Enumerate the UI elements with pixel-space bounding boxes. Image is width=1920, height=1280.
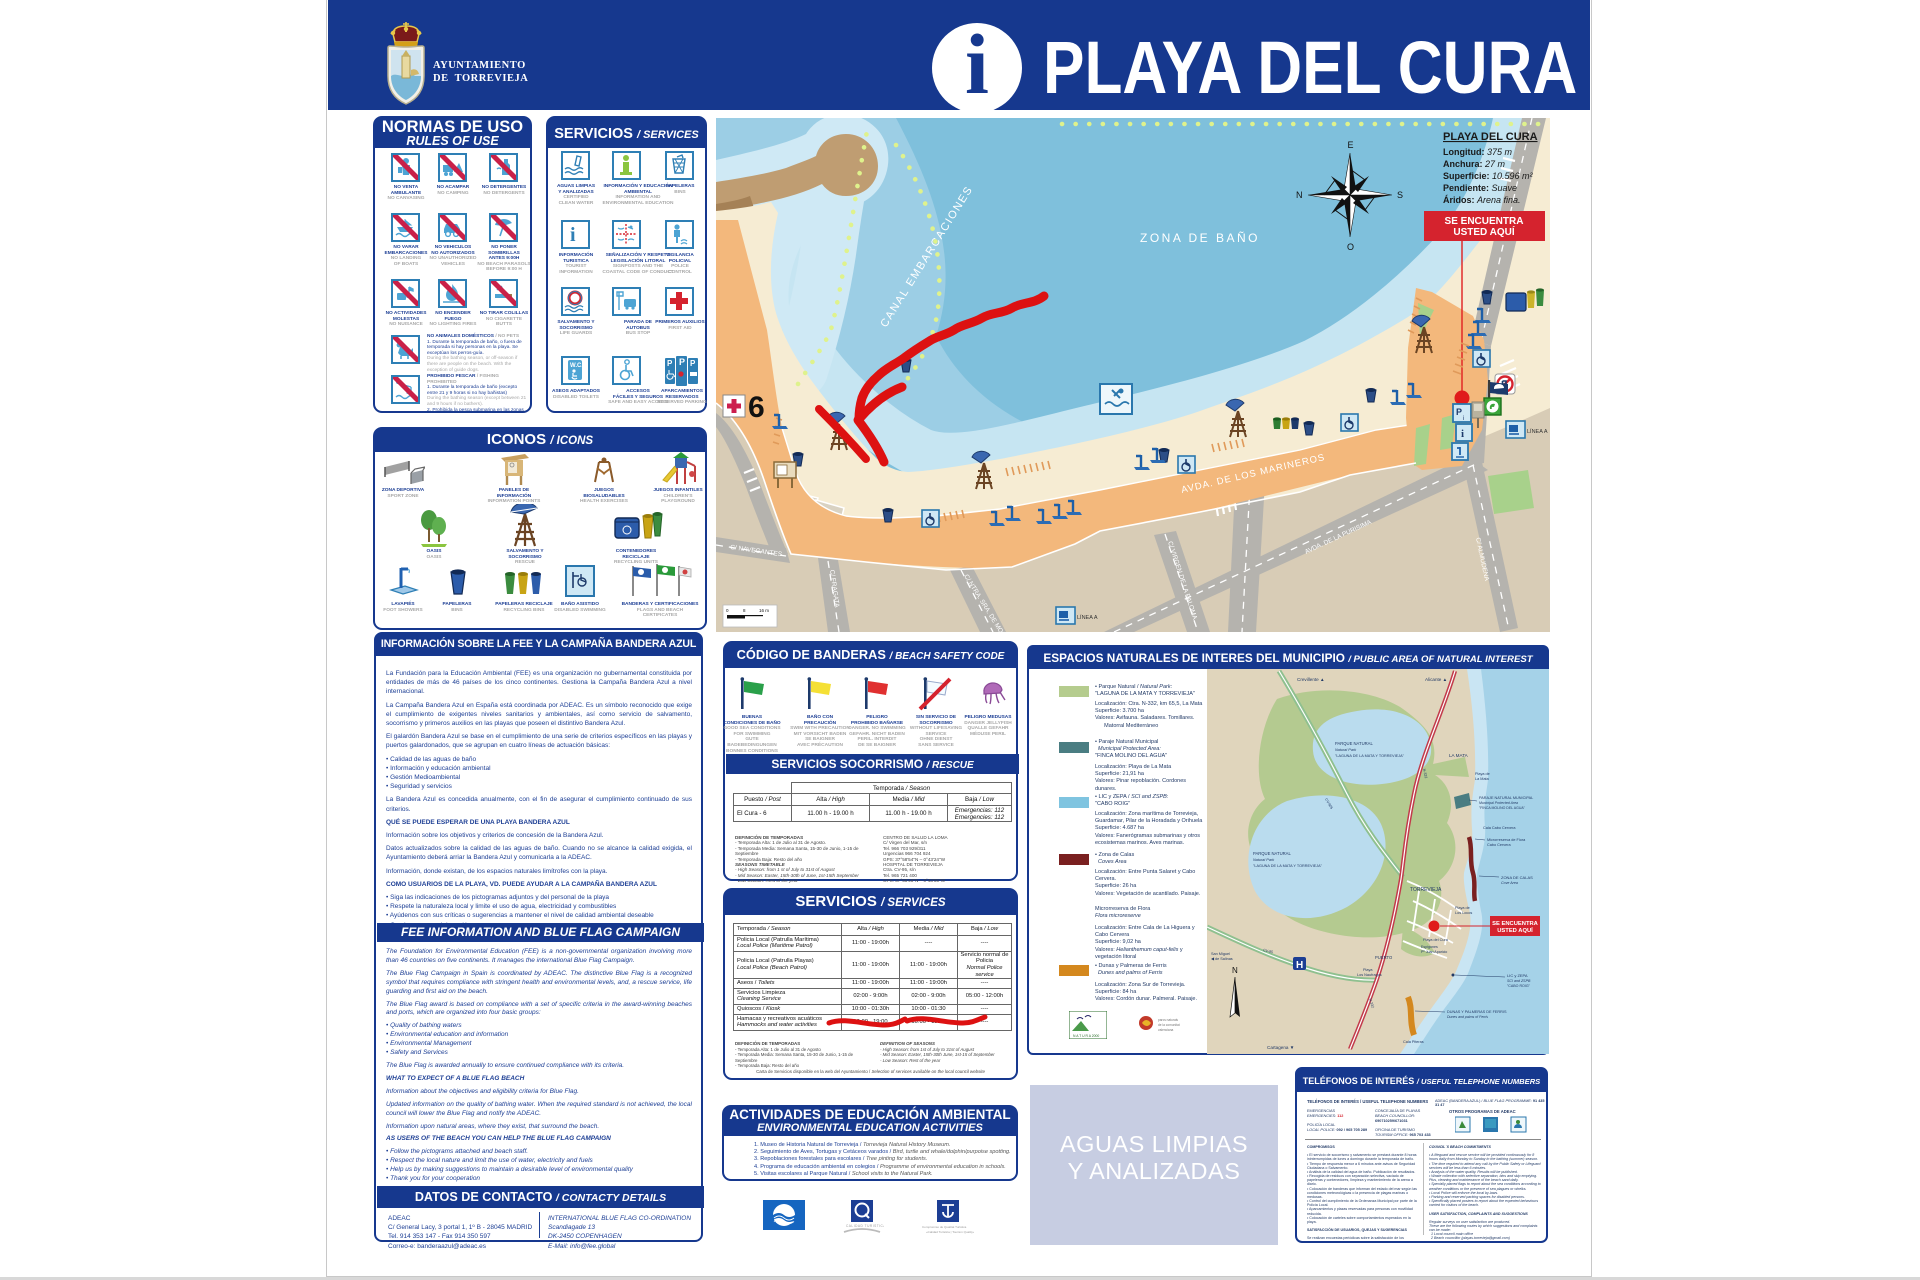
svg-text:PARQUE NATURAL: PARQUE NATURAL (1253, 851, 1291, 856)
svg-text:i: i (1461, 428, 1464, 440)
svg-text:San Miguel: San Miguel (1211, 952, 1230, 956)
svg-text:Microrreserva de Flora: Microrreserva de Flora (1487, 838, 1526, 842)
svg-text:PLAYA DEL CURA: PLAYA DEL CURA (1443, 131, 1538, 143)
svg-text:Cala Piteras: Cala Piteras (1403, 1040, 1424, 1044)
svg-text:E: E (1348, 140, 1354, 150)
svg-text:Alicante ▲: Alicante ▲ (1425, 677, 1447, 682)
svg-text:TORREVIEJA: TORREVIEJA (1410, 887, 1442, 893)
svg-text:DUNAS Y PALMERAS DE FERRIS: DUNAS Y PALMERAS DE FERRIS (1447, 1010, 1507, 1014)
svg-text:Playa del Cura: Playa del Cura (1423, 938, 1449, 942)
svg-text:P: P (690, 359, 696, 368)
svg-text:La Mata: La Mata (1475, 777, 1490, 781)
svg-text:Crevillente ▲: Crevillente ▲ (1297, 677, 1325, 682)
svg-text:CALIDAD TURISTICA: CALIDAD TURISTICA (846, 1224, 884, 1228)
svg-text:Superficie: 10.596 m²: Superficie: 10.596 m² (1443, 171, 1534, 181)
svg-text:"FINCA MOLINO DEL AGUA": "FINCA MOLINO DEL AGUA" (1479, 806, 1526, 810)
svg-text:i: i (570, 224, 576, 246)
svg-text:LIC y ZEPA: LIC y ZEPA (1507, 973, 1528, 978)
svg-text:Los Naufragos: Los Naufragos (1357, 973, 1382, 977)
svg-text:"LAGUNA DE LA MATA Y TORREVIEJ: "LAGUNA DE LA MATA Y TORREVIEJA" (1335, 754, 1405, 758)
svg-text:SE ENCUENTRA: SE ENCUENTRA (1492, 921, 1539, 927)
svg-text:P: P (679, 357, 685, 367)
svg-text:W.C.: W.C. (570, 363, 583, 369)
svg-text:N: N (1232, 966, 1238, 975)
svg-text:N A T U R A 2000: N A T U R A 2000 (1073, 1034, 1099, 1038)
svg-text:Longitud: 375 m: Longitud: 375 m (1443, 147, 1513, 157)
svg-text:Cartagena ▼: Cartagena ▼ (1267, 1045, 1294, 1050)
svg-text:Playa de: Playa de (1475, 772, 1490, 776)
svg-text:Natural Park: Natural Park (1335, 748, 1357, 752)
svg-text:PARAJE NATURAL MUNICIPAL: PARAJE NATURAL MUNICIPAL (1479, 796, 1533, 800)
svg-text:"CABO ROIG": "CABO ROIG" (1507, 984, 1531, 988)
svg-text:N: N (1296, 190, 1303, 200)
svg-text:Compromiso de Qualitat Turisti: Compromiso de Qualitat Turistica (922, 1225, 967, 1229)
svg-text:"LAGUNA DE LA MATA Y TORREVIEJ: "LAGUNA DE LA MATA Y TORREVIEJA" (1253, 864, 1323, 868)
svg-text:Natural Park: Natural Park (1253, 858, 1275, 862)
svg-text:H: H (1296, 960, 1303, 971)
svg-text:USTED AQUÍ: USTED AQUÍ (1453, 225, 1515, 238)
svg-text:P: P (1456, 407, 1462, 417)
svg-text:PUERTO: PUERTO (1375, 955, 1393, 960)
svg-text:SE ENCUENTRA: SE ENCUENTRA (1445, 216, 1524, 227)
svg-text:Cabo Cervera: Cabo Cervera (1487, 843, 1512, 847)
svg-text:Pº Juan Aparicio: Pº Juan Aparicio (1421, 950, 1447, 954)
svg-text:Playa de: Playa de (1455, 906, 1470, 910)
svg-text:valenciana: valenciana (1158, 1028, 1173, 1032)
svg-text:de la comunitat: de la comunitat (1158, 1023, 1180, 1027)
svg-text:◀ de Salinas: ◀ de Salinas (1211, 957, 1233, 961)
svg-text:S: S (1397, 190, 1403, 200)
svg-text:SCI and ZSPB: SCI and ZSPB (1507, 979, 1531, 983)
svg-text:Playa: Playa (1363, 968, 1373, 972)
svg-text:ZONA DE BAÑO: ZONA DE BAÑO (1140, 231, 1260, 245)
svg-text:ZONA DE CALAS: ZONA DE CALAS (1501, 875, 1533, 880)
svg-text:LÍNEA A: LÍNEA A (1527, 428, 1548, 435)
svg-text:Áridos: Arena fina.: Áridos: Arena fina. (1443, 195, 1521, 205)
svg-text:parcs naturals: parcs naturals (1158, 1018, 1178, 1022)
svg-text:Pendiente: Suave: Pendiente: Suave (1443, 183, 1517, 193)
svg-text:Cala Cabo Cervera: Cala Cabo Cervera (1483, 826, 1516, 830)
svg-text:Dunes and palms of Ferris: Dunes and palms of Ferris (1447, 1015, 1488, 1019)
svg-text:O: O (1347, 242, 1354, 252)
svg-text:P: P (667, 359, 673, 368)
svg-text:Los Locos: Los Locos (1455, 911, 1472, 915)
svg-text:USTED AQUÍ: USTED AQUÍ (1497, 926, 1533, 934)
svg-text:LÍNEA A: LÍNEA A (1077, 614, 1098, 621)
svg-text:16 m: 16 m (759, 608, 769, 613)
svg-text:Municipal Protected Area: Municipal Protected Area (1479, 801, 1518, 805)
svg-text:«Calidad Turistica | Tourism Q: «Calidad Turistica | Tourism Quality» (926, 1230, 974, 1234)
svg-text:Anchura: 27 m: Anchura: 27 m (1443, 159, 1506, 169)
svg-text:i: i (1463, 416, 1464, 422)
svg-text:6: 6 (748, 391, 765, 424)
svg-text:LA MATA: LA MATA (1449, 753, 1469, 758)
svg-text:Espigones: Espigones (1421, 945, 1438, 949)
svg-text:PARQUE NATURAL: PARQUE NATURAL (1335, 741, 1373, 746)
svg-text:Cove Area: Cove Area (1501, 881, 1518, 885)
